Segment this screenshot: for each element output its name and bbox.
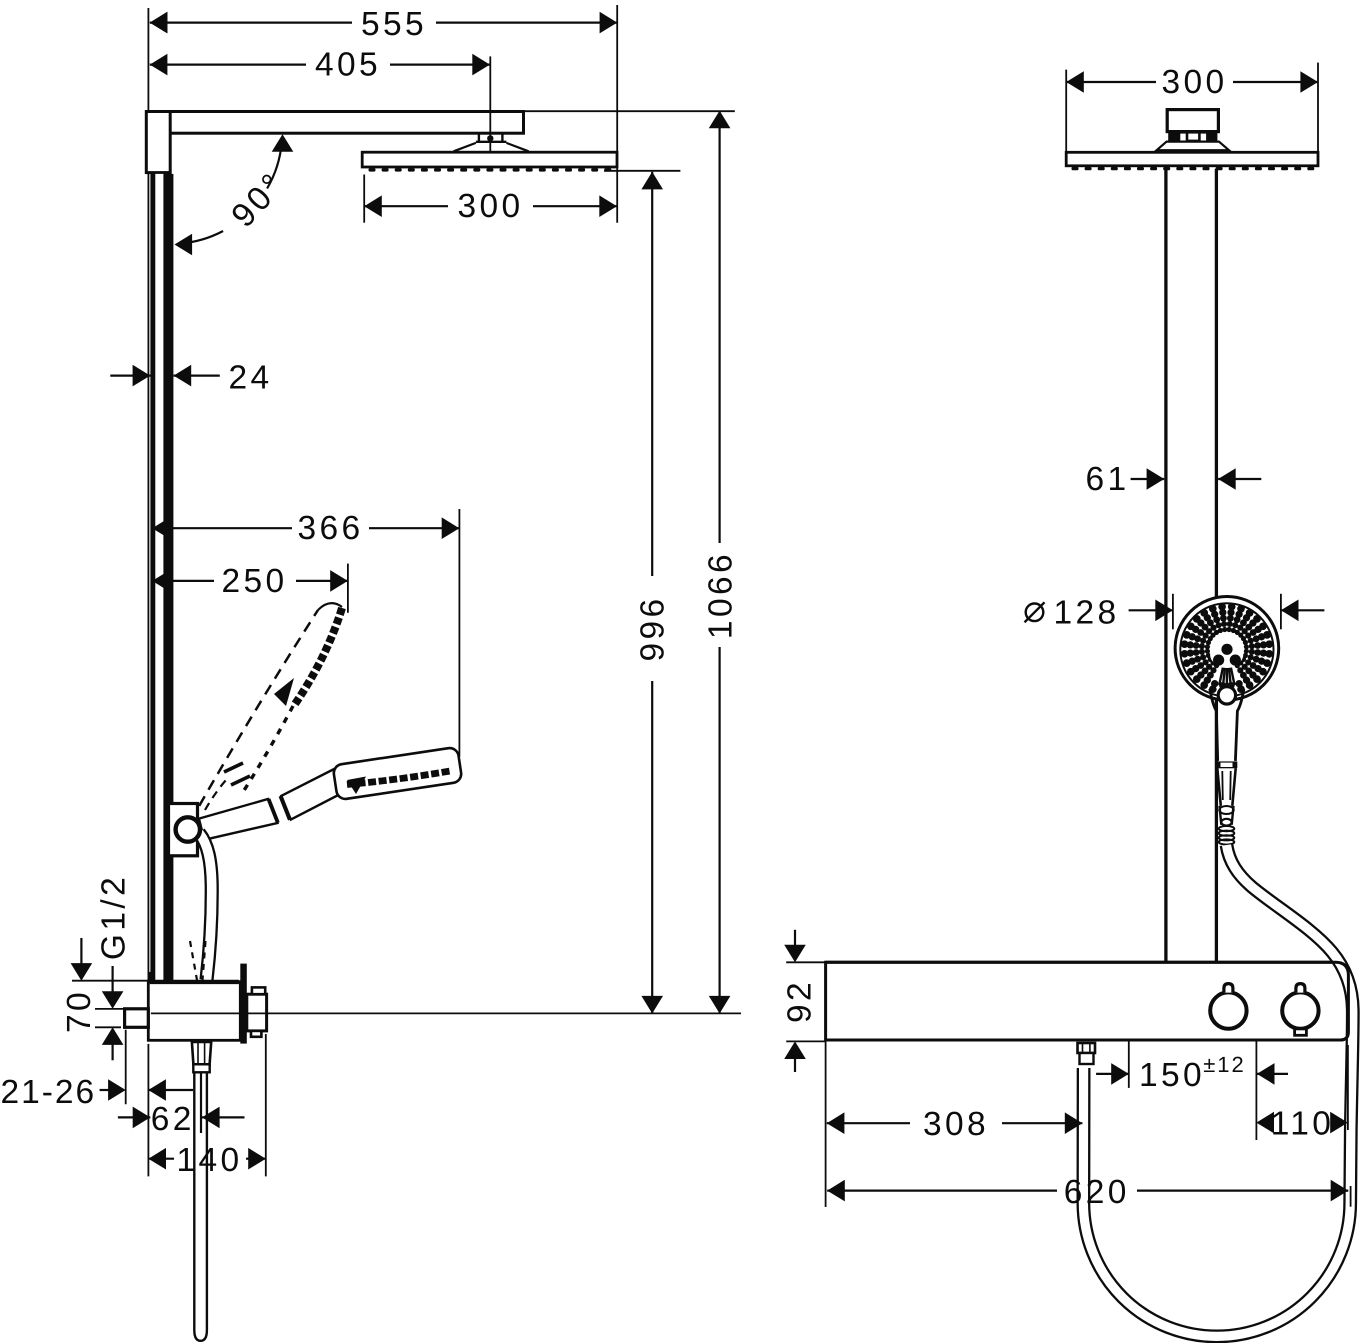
svg-text:21-26: 21-26 (0, 1074, 96, 1111)
svg-text:61: 61 (1085, 461, 1129, 498)
svg-text:90°: 90° (225, 165, 294, 235)
svg-text:555: 555 (361, 6, 427, 43)
svg-text:128: 128 (1053, 595, 1119, 632)
svg-text:300: 300 (457, 188, 523, 225)
svg-text:±12: ±12 (1203, 1052, 1246, 1077)
svg-text:405: 405 (315, 47, 381, 84)
svg-text:620: 620 (1064, 1174, 1130, 1211)
svg-text:G1/2: G1/2 (96, 874, 133, 960)
svg-text:92: 92 (782, 979, 819, 1023)
svg-text:366: 366 (297, 510, 363, 547)
svg-text:140: 140 (176, 1142, 242, 1179)
svg-text:24: 24 (228, 359, 272, 396)
svg-text:150: 150 (1139, 1057, 1205, 1094)
svg-text:250: 250 (221, 563, 287, 600)
svg-text:996: 996 (634, 595, 671, 661)
svg-text:308: 308 (923, 1106, 989, 1143)
svg-text:1066: 1066 (702, 551, 739, 639)
svg-text:70: 70 (61, 989, 98, 1033)
svg-text:110: 110 (1271, 1105, 1335, 1142)
svg-text:62: 62 (151, 1101, 195, 1138)
svg-text:300: 300 (1161, 64, 1227, 101)
